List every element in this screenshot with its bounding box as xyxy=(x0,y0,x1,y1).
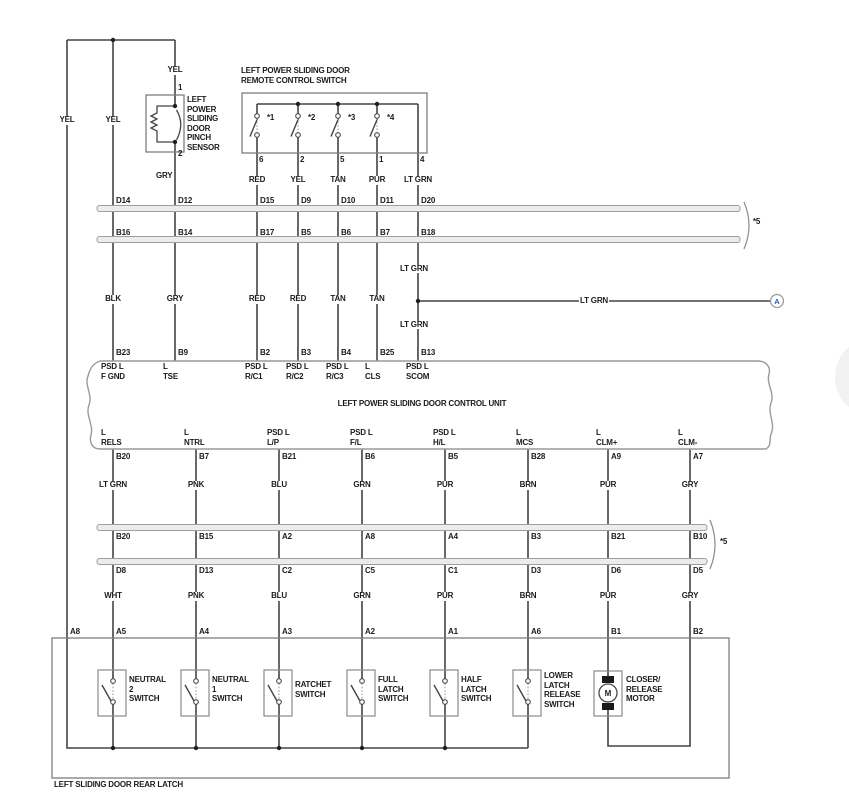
component-name: RATCHET SWITCH xyxy=(295,680,331,699)
wire-color-label: GRN xyxy=(352,481,371,490)
wire-color-label: PNK xyxy=(187,481,205,490)
switch-id-label: *2 xyxy=(308,113,315,123)
connector-pin-label: B7 xyxy=(380,228,390,238)
component-name: LOWER LATCH RELEASE SWITCH xyxy=(544,671,580,709)
pin-label: B20 xyxy=(116,452,130,462)
wires xyxy=(67,40,771,748)
connector-note-brackets xyxy=(710,202,749,569)
component-name: NEUTRAL 2 SWITCH xyxy=(129,675,166,704)
connector-pin-label: B17 xyxy=(260,228,274,238)
pin-name-label: PSD L SCOM xyxy=(406,362,429,381)
pin-label: 1 xyxy=(379,155,383,165)
pin-label: A1 xyxy=(448,627,458,637)
pin-label: A6 xyxy=(531,627,541,637)
pin-label: 2 xyxy=(300,155,304,165)
pin-label: A9 xyxy=(611,452,621,462)
pin-label: B5 xyxy=(448,452,458,462)
wire-color-label: LT GRN xyxy=(98,481,128,490)
component-name: HALF LATCH SWITCH xyxy=(461,675,491,704)
connector-pin-label: D20 xyxy=(421,196,435,206)
wire-color-label: PUR xyxy=(599,481,617,490)
connector-pin-label: D13 xyxy=(199,566,213,576)
component-name: NEUTRAL 1 SWITCH xyxy=(212,675,249,704)
connector-pin-label: B6 xyxy=(341,228,351,238)
connector-pin-label: B3 xyxy=(531,532,541,542)
connector-pin-label: B18 xyxy=(421,228,435,238)
wire-color-label: YEL xyxy=(59,116,76,125)
pin-label: B23 xyxy=(116,348,130,358)
component-name: FULL LATCH SWITCH xyxy=(378,675,408,704)
pin-label: A2 xyxy=(365,627,375,637)
wire-color-label: TAN xyxy=(329,295,346,304)
connector-pin-label: B10 xyxy=(693,532,707,542)
wire-color-label: GRN xyxy=(352,592,371,601)
motor-letter: M xyxy=(605,689,612,698)
wire-color-label: YEL xyxy=(105,116,122,125)
remote-switch-symbol xyxy=(242,93,427,153)
wire-color-label: BRN xyxy=(519,481,538,490)
wire-color-label: LT GRN xyxy=(403,176,433,185)
pin-name-label: PSD L R/C3 xyxy=(326,362,349,381)
connector-pin-label: B15 xyxy=(199,532,213,542)
pin-name-label: PSD L R/C1 xyxy=(245,362,268,381)
connector-pin-label: D6 xyxy=(611,566,621,576)
wire-color-label: PUR xyxy=(599,592,617,601)
pin-label: B7 xyxy=(199,452,209,462)
pin-label: B6 xyxy=(365,452,375,462)
pin-label: B28 xyxy=(531,452,545,462)
pin-label: B21 xyxy=(282,452,296,462)
pin-label: A5 xyxy=(116,627,126,637)
connector-pin-label: B16 xyxy=(116,228,130,238)
pin-label: B3 xyxy=(301,348,311,358)
corner-fab[interactable] xyxy=(835,337,849,417)
switch-id-label: *1 xyxy=(267,113,274,123)
connector-pin-label: D8 xyxy=(116,566,126,576)
connector-pin-label: B5 xyxy=(301,228,311,238)
connector-pin-label: C1 xyxy=(448,566,458,576)
wire-color-label: TAN xyxy=(329,176,346,185)
pin-name-label: L CLM+ xyxy=(596,428,617,447)
wire-color-label: LT GRN xyxy=(399,265,429,274)
pin-name-label: L CLM- xyxy=(678,428,697,447)
connector-pin-label: D14 xyxy=(116,196,130,206)
pin-name-label: L CLS xyxy=(365,362,380,381)
component-name: LEFT POWER SLIDING DOOR REMOTE CONTROL S… xyxy=(241,66,350,85)
component-name: CLOSER/ RELEASE MOTOR xyxy=(626,675,662,704)
component-name: LEFT POWER SLIDING DOOR CONTROL UNIT xyxy=(338,399,507,409)
connector-pin-label: D15 xyxy=(260,196,274,206)
pin-label: A7 xyxy=(693,452,703,462)
pin-name-label: PSD L F/L xyxy=(350,428,373,447)
connector-pin-label: B21 xyxy=(611,532,625,542)
rear-latch-outline xyxy=(52,638,729,778)
pin-label: A3 xyxy=(282,627,292,637)
pin-name-label: PSD L R/C2 xyxy=(286,362,309,381)
wire-color-label: BLU xyxy=(270,592,288,601)
wire-color-label: YEL xyxy=(167,66,184,75)
wire-color-label: GRY xyxy=(681,481,699,490)
connector-pin-label: D11 xyxy=(380,196,394,206)
wire-color-label: BRN xyxy=(519,592,538,601)
wiring-diagram: YEL YEL YEL 1 LEFT POWER SLIDING DOOR PI… xyxy=(0,0,849,812)
switch-terminals xyxy=(111,114,531,705)
pin-label: 5 xyxy=(340,155,344,165)
note-label: *5 xyxy=(753,217,760,227)
pin-label: A4 xyxy=(199,627,209,637)
wire-color-label: RED xyxy=(289,295,307,304)
wire-color-label: PUR xyxy=(436,481,454,490)
pin-label: 1 xyxy=(178,83,182,93)
connector-pin-label: C5 xyxy=(365,566,375,576)
component-name: LEFT POWER SLIDING DOOR PINCH SENSOR xyxy=(187,95,220,152)
pin-name-label: L TSE xyxy=(163,362,178,381)
pin-label: B4 xyxy=(341,348,351,358)
pin-name-label: L RELS xyxy=(101,428,122,447)
circuit-ref-a[interactable]: A xyxy=(774,297,779,306)
pin-label: A8 xyxy=(70,627,80,637)
wire-color-label: PNK xyxy=(187,592,205,601)
connector-pin-label: A4 xyxy=(448,532,458,542)
wire-color-label: WHT xyxy=(103,592,123,601)
pin-name-label: L MCS xyxy=(516,428,533,447)
pin-label: B9 xyxy=(178,348,188,358)
connector-pin-label: A8 xyxy=(365,532,375,542)
wire-color-label: GRY xyxy=(156,171,172,181)
pin-label: B25 xyxy=(380,348,394,358)
connector-pin-label: D10 xyxy=(341,196,355,206)
wire-color-label: GRY xyxy=(166,295,184,304)
component-name: LEFT SLIDING DOOR REAR LATCH xyxy=(54,780,183,790)
pin-label: B2 xyxy=(693,627,703,637)
pin-label: 2 xyxy=(178,149,182,159)
note-label: *5 xyxy=(720,537,727,547)
connector-pin-label: B14 xyxy=(178,228,192,238)
pin-name-label: PSD L F GND xyxy=(101,362,125,381)
wire-color-label: BLK xyxy=(104,295,122,304)
wire-color-label: BLU xyxy=(270,481,288,490)
wire-color-label: LT GRN xyxy=(579,297,609,306)
pinch-sensor-symbol xyxy=(146,95,184,152)
connector-pin-label: A2 xyxy=(282,532,292,542)
pin-label: B13 xyxy=(421,348,435,358)
connector-pin-label: C2 xyxy=(282,566,292,576)
switch-id-label: *3 xyxy=(348,113,355,123)
connector-pin-label: B20 xyxy=(116,532,130,542)
wire-color-label: TAN xyxy=(368,295,385,304)
pin-name-label: PSD L H/L xyxy=(433,428,456,447)
pin-name-label: PSD L L/P xyxy=(267,428,290,447)
switch-id-label: *4 xyxy=(387,113,394,123)
connector-pin-label: D5 xyxy=(693,566,703,576)
pin-label: 4 xyxy=(420,155,424,165)
wire-color-label: PUR xyxy=(368,176,386,185)
pin-name-label: L NTRL xyxy=(184,428,205,447)
connector-pin-label: D3 xyxy=(531,566,541,576)
pin-label: B1 xyxy=(611,627,621,637)
wire-color-label: PUR xyxy=(436,592,454,601)
wire-color-label: YEL xyxy=(290,176,307,185)
pin-label: 6 xyxy=(259,155,263,165)
pin-label: B2 xyxy=(260,348,270,358)
connector-pin-label: D12 xyxy=(178,196,192,206)
wire-color-label: RED xyxy=(248,295,266,304)
wire-color-label: RED xyxy=(248,176,266,185)
wire-color-label: GRY xyxy=(681,592,699,601)
connector-pin-label: D9 xyxy=(301,196,311,206)
wire-color-label: LT GRN xyxy=(399,321,429,330)
